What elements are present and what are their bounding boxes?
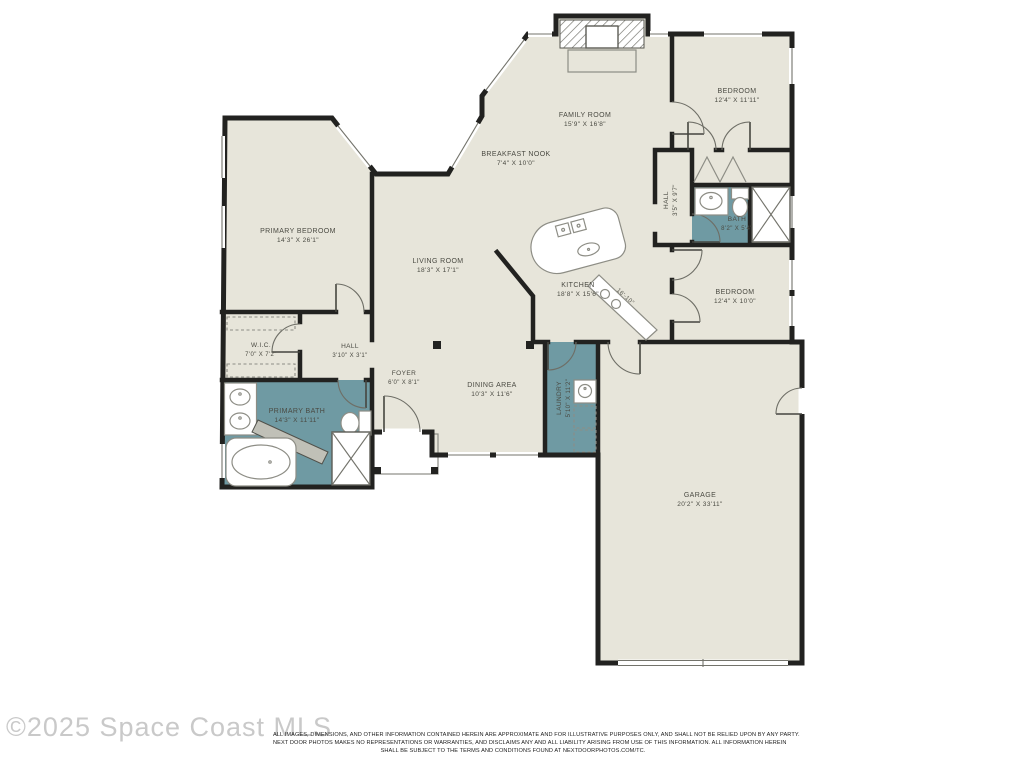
column-icon (433, 341, 441, 349)
room-label-hall-left: HALL 3'10" X 3'1" (332, 344, 367, 359)
disclaimer-line: NEXT DOOR PHOTOS MAKES NO REPRESENTATION… (273, 739, 753, 747)
room-label-wic: W.I.C. 7'0" X 7'2" (245, 343, 277, 358)
front-porch (374, 434, 438, 474)
column-icon (526, 341, 534, 349)
room-label-dining-area: DINING AREA 10'3" X 11'6" (467, 382, 517, 399)
room-label-bedroom-bottom: BEDROOM 12'4" X 10'0" (714, 289, 756, 306)
room-label-primary-bedroom: PRIMARY BEDROOM 14'3" X 26'1" (260, 228, 336, 245)
room-label-living-room: LIVING ROOM 18'3" X 17'1" (412, 258, 463, 275)
garage-door (618, 659, 788, 667)
room-label-kitchen: KITCHEN 18'8" X 15'6" (557, 282, 599, 299)
room-label-garage: GARAGE 20'2" X 33'11" (677, 492, 722, 509)
room-label-laundry: LAUNDRY 5'10" X 11'2" (557, 379, 572, 418)
disclaimer-line: SHALL BE SUBJECT TO THE TERMS AND CONDIT… (273, 747, 753, 755)
disclaimer-line: ALL IMAGES, DIMENSIONS, AND OTHER INFORM… (273, 731, 753, 739)
room-label-primary-bath: PRIMARY BATH 14'3" X 11'11" (269, 408, 326, 425)
floor-plan-page: FAMILY ROOM 15'9" X 16'8" BEDROOM 12'4" … (0, 0, 1024, 768)
room-label-bedroom-top: BEDROOM 12'4" X 11'11" (715, 88, 760, 105)
room-label-family-room: FAMILY ROOM 15'9" X 16'8" (559, 112, 611, 129)
floor-area (222, 16, 802, 663)
room-label-breakfast-nook: BREAKFAST NOOK 7'4" X 10'0" (481, 151, 550, 168)
room-label-foyer: FOYER 6'0" X 8'1" (388, 371, 420, 386)
disclaimer: ALL IMAGES, DIMENSIONS, AND OTHER INFORM… (273, 731, 753, 755)
room-label-bath: BATH 8'2" X 5'4" (721, 217, 753, 232)
room-label-hall-right: HALL 3'5" X 9'7" (664, 184, 679, 216)
